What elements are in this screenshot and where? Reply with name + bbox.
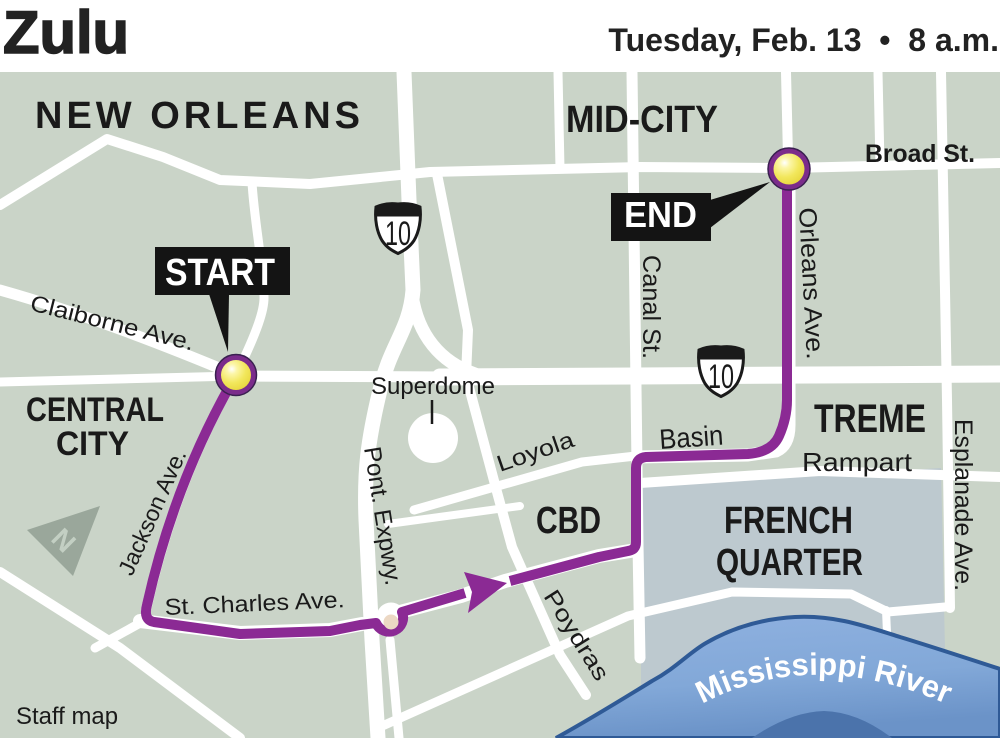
svg-text:FRENCH: FRENCH bbox=[724, 500, 853, 542]
svg-text:Basin: Basin bbox=[658, 420, 724, 455]
svg-text:Zulu: Zulu bbox=[3, 0, 129, 66]
svg-text:Superdome: Superdome bbox=[371, 373, 495, 400]
svg-text:END: END bbox=[624, 194, 697, 235]
svg-text:Tuesday, Feb. 13 • 8 a.m.: Tuesday, Feb. 13 • 8 a.m. bbox=[608, 22, 999, 58]
svg-text:Staff map: Staff map bbox=[16, 703, 118, 730]
svg-text:Rampart: Rampart bbox=[802, 447, 913, 477]
svg-text:CITY: CITY bbox=[56, 425, 129, 463]
svg-text:NEW ORLEANS: NEW ORLEANS bbox=[35, 95, 360, 137]
svg-text:TREME: TREME bbox=[814, 397, 926, 441]
svg-text:10: 10 bbox=[385, 215, 411, 253]
svg-text:START: START bbox=[165, 252, 275, 294]
svg-text:QUARTER: QUARTER bbox=[716, 542, 863, 584]
svg-text:Esplanade Ave.: Esplanade Ave. bbox=[949, 419, 977, 591]
svg-text:CBD: CBD bbox=[536, 500, 601, 542]
svg-text:CENTRAL: CENTRAL bbox=[26, 391, 164, 429]
svg-text:Canal St.: Canal St. bbox=[637, 255, 665, 359]
svg-text:Broad St.: Broad St. bbox=[865, 140, 975, 168]
svg-text:MID-CITY: MID-CITY bbox=[566, 99, 718, 141]
